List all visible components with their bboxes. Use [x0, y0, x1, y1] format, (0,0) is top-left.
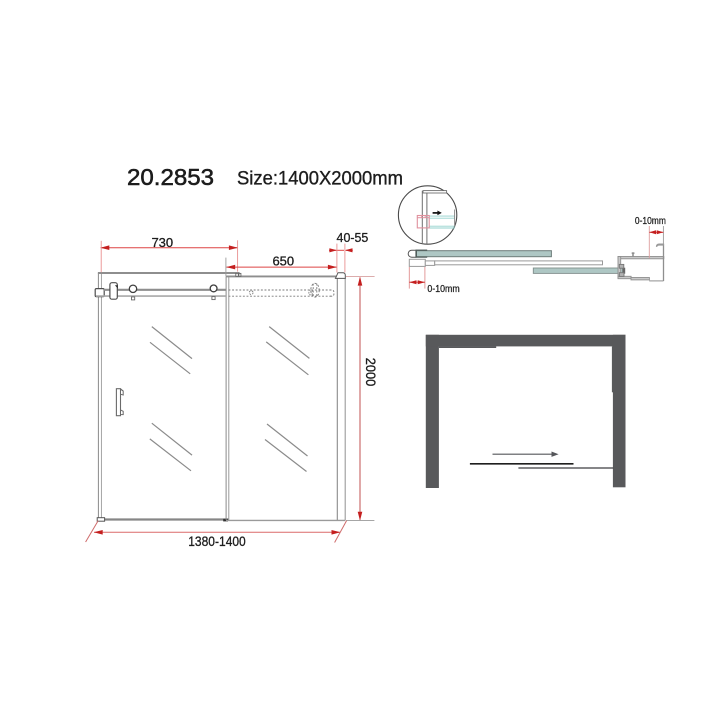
svg-text:0-10mm: 0-10mm [427, 284, 459, 295]
svg-text:0-10mm: 0-10mm [635, 216, 666, 227]
svg-text:40-55: 40-55 [337, 230, 369, 245]
svg-text:Size:1400X2000mm: Size:1400X2000mm [237, 168, 403, 190]
svg-text:2000: 2000 [363, 358, 378, 387]
svg-text:730: 730 [151, 235, 173, 250]
svg-text:1380-1400: 1380-1400 [188, 533, 246, 549]
svg-text:650: 650 [272, 254, 294, 269]
svg-text:20.2853: 20.2853 [127, 164, 214, 190]
